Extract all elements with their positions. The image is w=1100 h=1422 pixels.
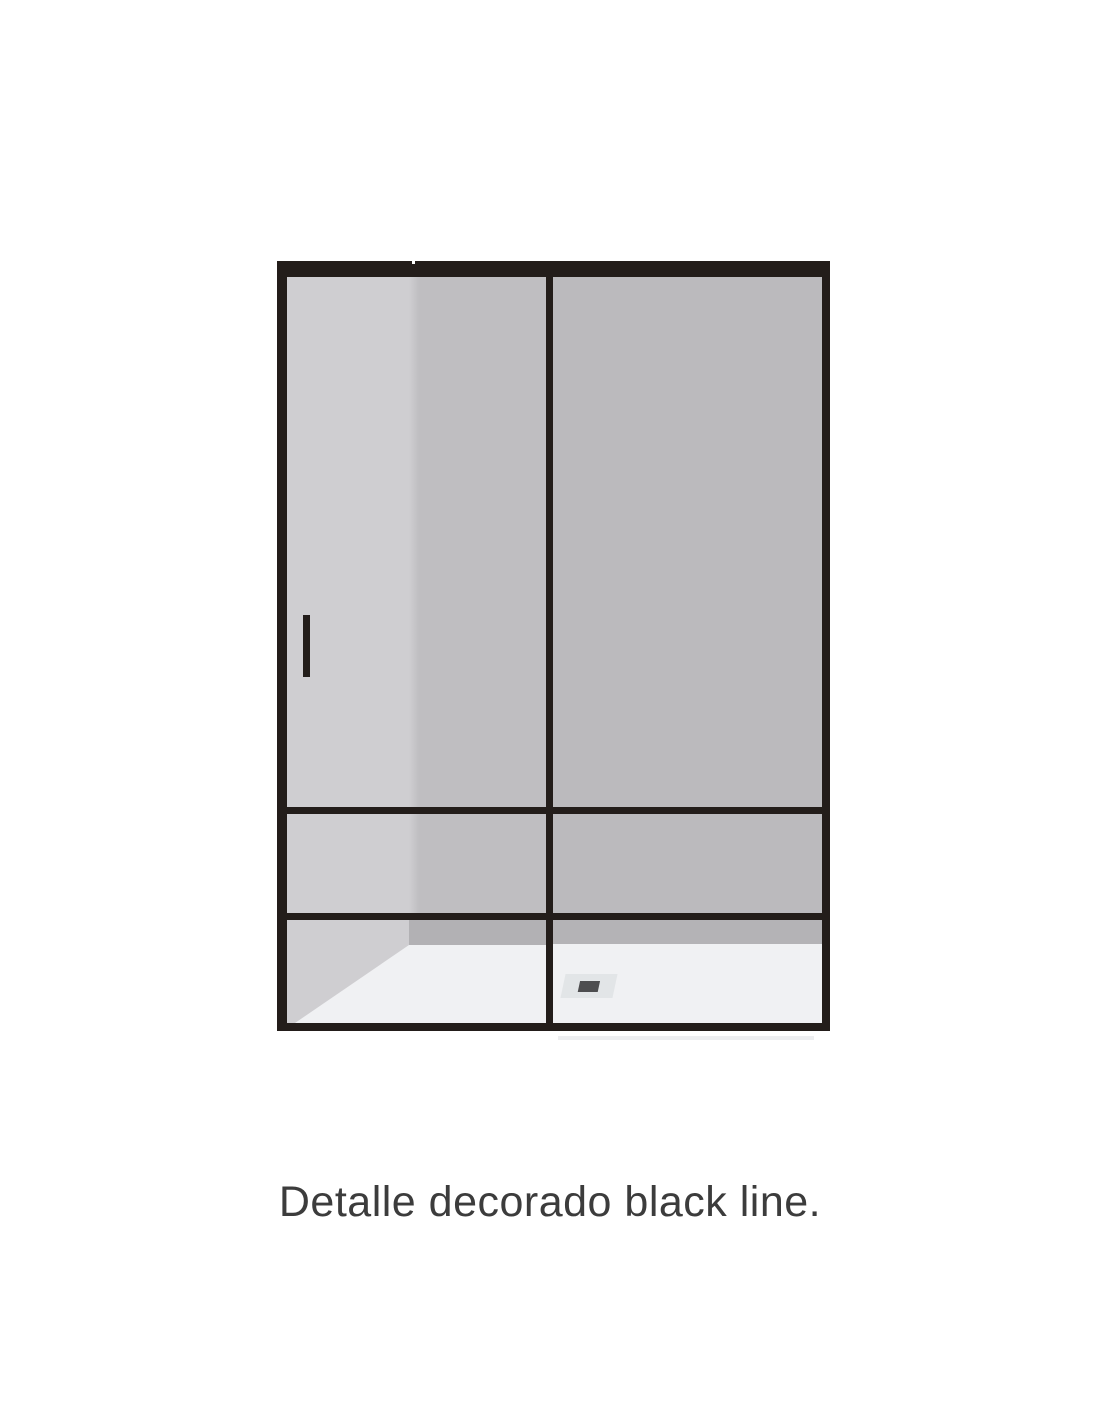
- door-handle: [303, 615, 310, 677]
- glass-panel-left: [287, 277, 546, 1023]
- drain-icon: [560, 974, 617, 998]
- bottom-rail: [277, 1023, 830, 1031]
- top-rail-seam: [412, 261, 415, 264]
- glass-panel-right: [553, 277, 822, 1023]
- top-rail: [277, 261, 830, 277]
- caption: Detalle decorado black line.: [0, 1178, 1100, 1227]
- tray-scene-left: [287, 920, 546, 1023]
- product-detail-page: Detalle decorado black line.: [0, 0, 1100, 1422]
- left-post: [277, 261, 287, 1031]
- right-post: [822, 261, 830, 1031]
- center-post: [546, 261, 553, 1031]
- mullion: [277, 913, 830, 920]
- drain-grate-icon: [578, 981, 600, 992]
- shower-tray-right: [553, 944, 822, 1023]
- back-wall: [409, 920, 546, 946]
- tray-scene-right: [553, 920, 822, 1023]
- shower-enclosure-illustration: [277, 261, 830, 1031]
- mullion: [277, 807, 830, 814]
- tray-shadow: [558, 1036, 814, 1040]
